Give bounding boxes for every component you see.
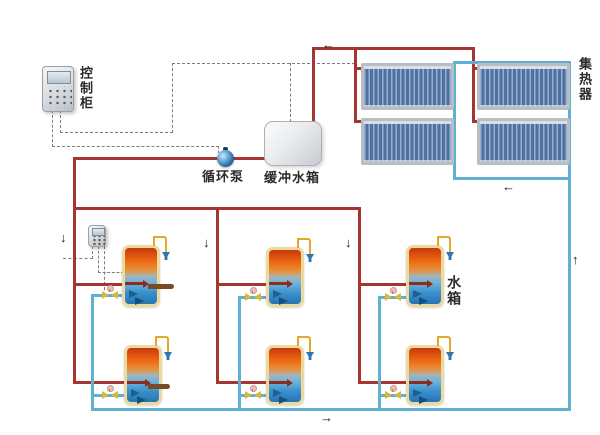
buffer-tank — [264, 121, 322, 166]
hot-pipe — [73, 381, 127, 384]
faucet-icon — [306, 254, 314, 262]
faucet-pipe — [437, 336, 451, 352]
valve-icon — [102, 285, 118, 300]
valve-icon — [245, 385, 261, 400]
solar-collector-panel — [477, 118, 570, 165]
control-dashed-line — [98, 272, 124, 273]
faucet-icon — [306, 352, 314, 360]
flow-arrow-down-icon: ↓ — [345, 236, 352, 249]
hot-pipe — [358, 207, 361, 384]
hot-pipe — [358, 283, 410, 286]
circulation-pump-icon — [217, 150, 234, 167]
flow-arrow-right-icon: → — [320, 411, 333, 424]
label-collector: 集热器 — [576, 57, 591, 102]
control-dashed-line — [52, 110, 53, 147]
faucet-pipe — [153, 236, 167, 252]
faucet-pipe — [155, 336, 157, 346]
faucet-pipe — [153, 236, 155, 246]
hot-pipe — [312, 47, 315, 124]
flow-arrow-down-icon: ↓ — [60, 231, 67, 244]
solar-collector-panel — [361, 118, 454, 165]
hot-pipe — [312, 47, 475, 50]
faucet-pipe — [437, 236, 439, 246]
faucet-icon — [446, 352, 454, 360]
flow-arrow-left-icon: ← — [502, 180, 515, 193]
room-controller — [88, 225, 106, 247]
control-dashed-line — [92, 246, 93, 259]
valve-icon — [385, 385, 401, 400]
label-water-tank: 水箱 — [446, 275, 462, 307]
flow-arrow-up-icon: ↑ — [572, 253, 579, 266]
valve-icon — [385, 287, 401, 302]
label-circulation-pump: 循环泵 — [202, 170, 244, 185]
solar-collector-panel — [477, 63, 570, 110]
flow-arrow-left-icon: ← — [322, 38, 335, 51]
hot-pipe — [73, 157, 267, 160]
hot-pipe — [216, 381, 270, 384]
storage-tank — [266, 247, 304, 307]
hot-pipe — [216, 283, 270, 286]
faucet-pipe — [297, 238, 311, 254]
control-dashed-line — [172, 63, 173, 133]
faucet-pipe — [437, 336, 439, 346]
control-dashed-line — [60, 132, 173, 133]
label-buffer-tank: 缓冲水箱 — [264, 171, 320, 186]
hot-pipe — [73, 157, 76, 384]
control-dashed-line — [63, 258, 93, 259]
faucet-pipe — [297, 238, 299, 248]
drain-pipe — [148, 284, 174, 289]
valve-icon — [102, 385, 118, 400]
storage-tank — [124, 345, 162, 405]
faucet-pipe — [297, 336, 311, 352]
storage-tank — [122, 245, 160, 307]
drain-pipe — [148, 384, 170, 389]
control-dashed-line — [60, 110, 61, 133]
storage-tank — [406, 345, 444, 405]
control-dashed-line — [172, 63, 355, 64]
faucet-icon — [162, 252, 170, 260]
control-dashed-line — [52, 146, 219, 147]
faucet-icon — [446, 252, 454, 260]
control-dashed-line — [290, 63, 291, 122]
system-diagram: ← ← ↑ → ↓ ↓ ↓ 控制柜 循环泵 缓冲水箱 集热器 水箱 — [0, 0, 600, 435]
control-cabinet — [42, 66, 74, 112]
label-control-cabinet: 控制柜 — [77, 66, 92, 111]
faucet-pipe — [297, 336, 299, 346]
valve-icon — [245, 287, 261, 302]
flow-arrow-down-icon: ↓ — [203, 236, 210, 249]
hot-pipe — [216, 207, 219, 384]
faucet-pipe — [155, 336, 169, 352]
control-dashed-line — [98, 246, 99, 273]
hot-pipe — [472, 47, 475, 123]
storage-tank — [406, 245, 444, 307]
hot-pipe — [358, 381, 410, 384]
storage-tank — [266, 345, 304, 405]
hot-pipe — [354, 47, 357, 123]
faucet-pipe — [437, 236, 451, 252]
faucet-icon — [164, 352, 172, 360]
cold-pipe — [568, 61, 571, 411]
solar-collector-panel — [361, 63, 454, 110]
